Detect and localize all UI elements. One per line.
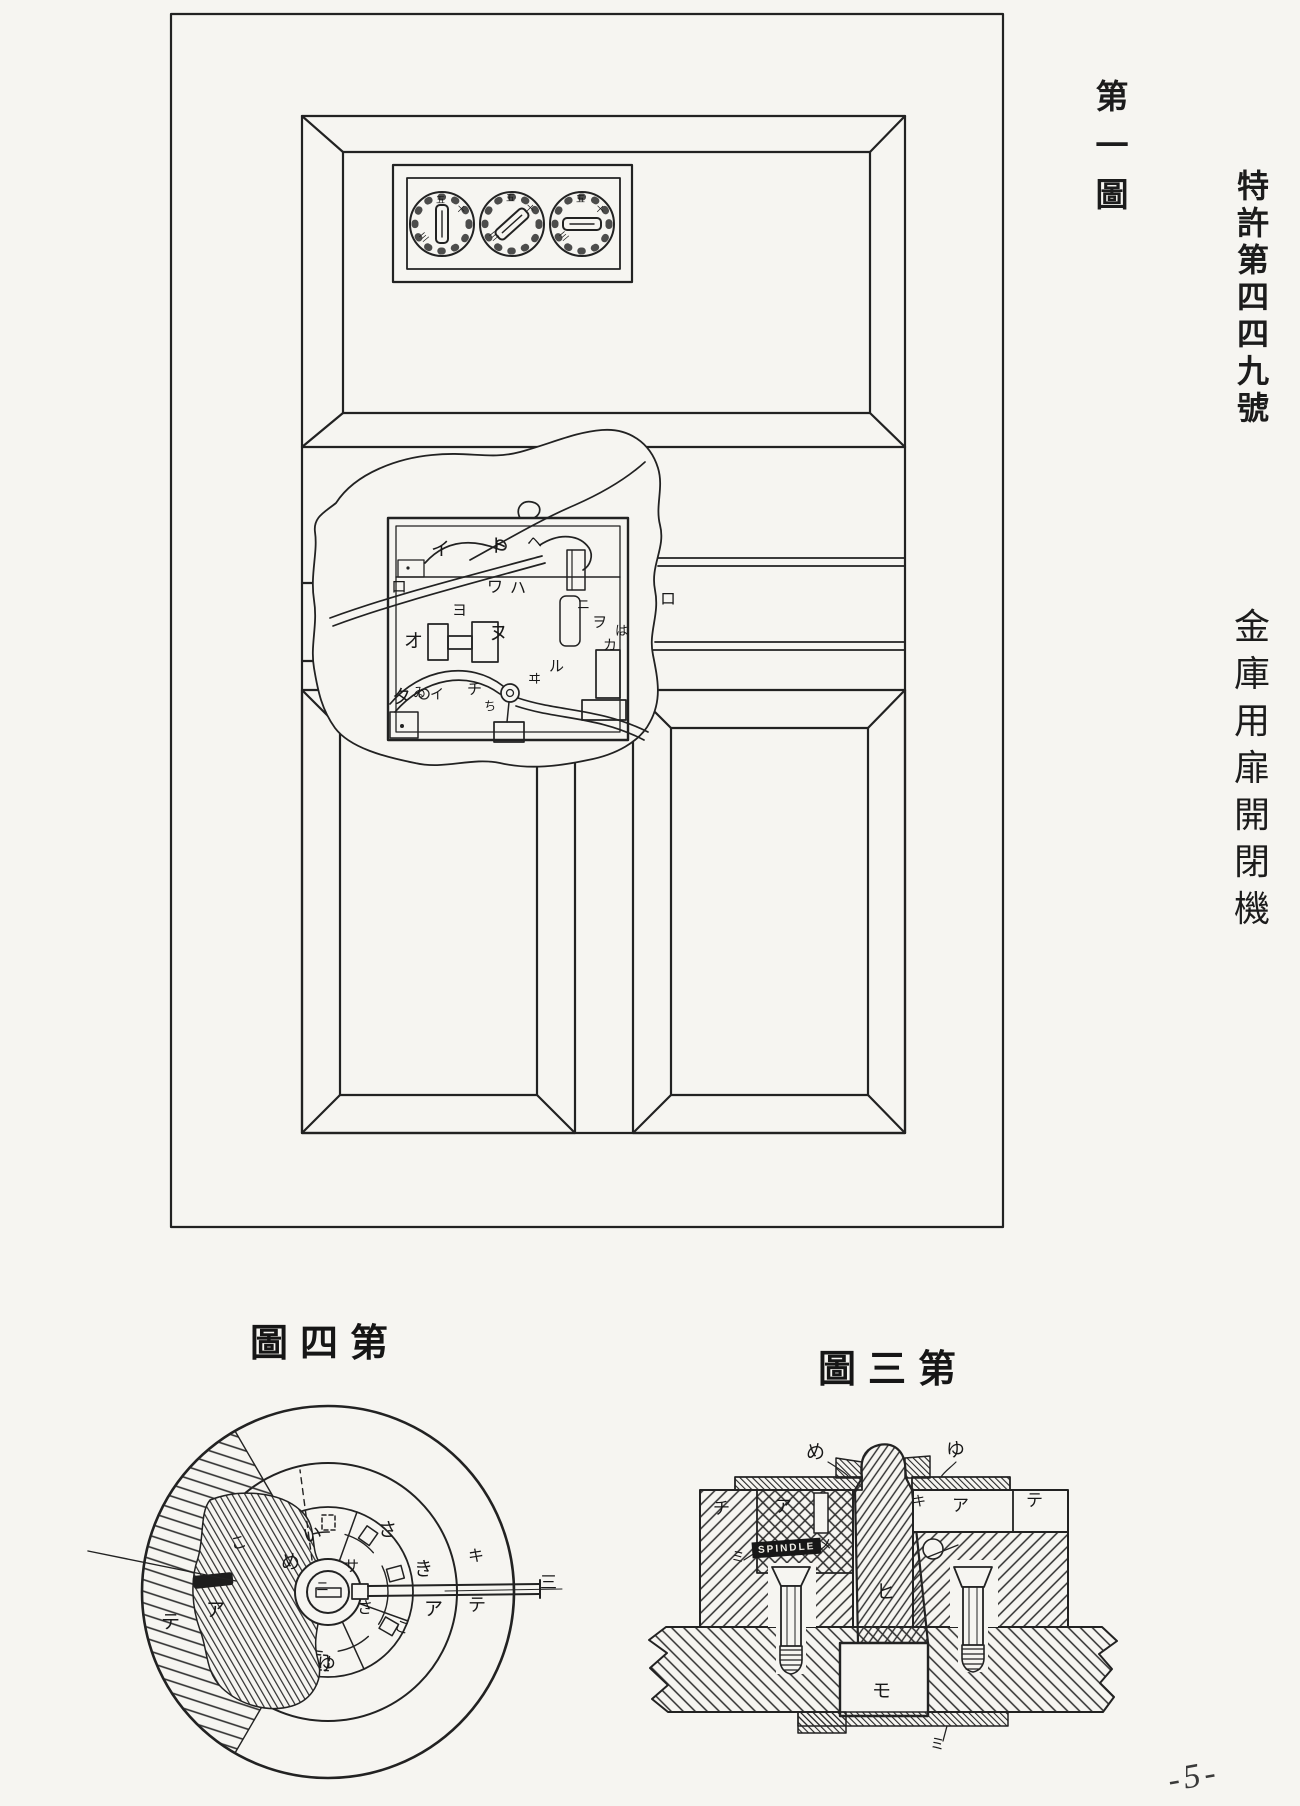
spindle-right-flange: [905, 1456, 930, 1478]
patent-drawing-canvas: [0, 0, 1300, 1806]
vertical-char: 圖: [1096, 172, 1129, 221]
keeper-box: [840, 1643, 928, 1716]
patent-name-vertical: 金庫用扉開閉機: [1226, 604, 1278, 933]
patent-number-vertical: 特許第四四九號: [1230, 168, 1276, 427]
door-bottom-right-panel: [633, 690, 905, 1133]
vertical-char: 特: [1237, 168, 1269, 205]
vertical-char: 號: [1237, 390, 1269, 427]
combination-dial-2: [480, 192, 544, 256]
patent-page: 第一圖 特許第四四九號 金庫用扉開閉機 圖四第 圖三第 イトヘロワハニヨオヌヲは…: [0, 0, 1300, 1806]
figure3-title: 圖三第: [818, 1338, 968, 1393]
right-white-box: [913, 1490, 1068, 1532]
top-plate-left: [735, 1477, 862, 1490]
spindle-left-flange: [836, 1458, 862, 1478]
vertical-char: 九: [1237, 353, 1269, 390]
bolt-lines: [652, 558, 905, 650]
figure1-title: 第一圖: [1090, 74, 1134, 221]
combination-dial-1: [410, 192, 474, 256]
vertical-char: 許: [1237, 205, 1269, 242]
vertical-char: 機: [1234, 886, 1270, 933]
spindle-shaft: [368, 1580, 562, 1598]
vertical-char: 四: [1237, 279, 1269, 316]
vertical-char: 扉: [1234, 745, 1270, 792]
mechanism-cutaway-blob: [313, 430, 662, 767]
gate-slot: [814, 1493, 828, 1533]
left-inner-block: [757, 1490, 853, 1573]
top-plate-right: [912, 1477, 1010, 1490]
bottom-strip-step: [798, 1712, 846, 1733]
cam-detail: [923, 1539, 943, 1559]
vertical-char: 一: [1096, 123, 1129, 172]
vertical-char: 用: [1234, 698, 1270, 745]
figure4-dial-mechanism: [88, 1406, 562, 1778]
figure1-safe-door: [171, 14, 1003, 1227]
vertical-char: 金: [1234, 604, 1270, 651]
vertical-char: 第: [1096, 74, 1129, 123]
combination-dial-3: [550, 192, 614, 256]
figure3-cross-section: [649, 1444, 1117, 1741]
center-boss: [295, 1559, 368, 1625]
figure4-title: 圖四第: [250, 1312, 400, 1367]
vertical-char: 第: [1237, 242, 1269, 279]
vertical-char: 庫: [1234, 651, 1270, 698]
vertical-char: 閉: [1234, 839, 1270, 886]
vertical-char: 開: [1234, 792, 1270, 839]
vertical-char: 四: [1237, 316, 1269, 353]
